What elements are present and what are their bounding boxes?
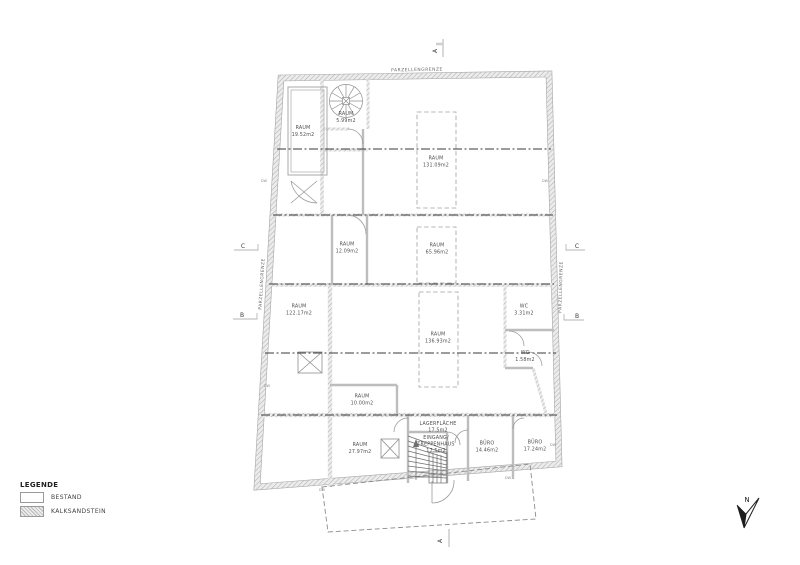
room-area: 17.5m2 xyxy=(428,428,448,434)
room-name: RAUM xyxy=(430,243,445,249)
room-label-raum-131-09: RAUM 131.09m2 xyxy=(423,156,449,169)
dw-label: DW xyxy=(264,384,271,388)
dw-label: DW xyxy=(319,488,326,492)
room-label-buero-17-24: BÜRO 17.24m2 xyxy=(524,439,547,453)
dw-label: DW xyxy=(542,179,549,183)
room-area: 65.96m2 xyxy=(426,250,449,256)
room-label-buero-14-46: BÜRO 14.46m2 xyxy=(476,440,499,454)
room-name-line1: EINGANG/ xyxy=(423,435,449,441)
room-area: 1.58m2 xyxy=(515,357,535,363)
dw-label: DW xyxy=(505,476,512,480)
section-marker-b-right: B xyxy=(564,313,584,320)
kalksandstein-swatch xyxy=(20,506,44,517)
room-label-raum-10-00: RAUM 10.00m2 xyxy=(351,394,374,407)
room-name: LAGERFLÄCHE xyxy=(420,420,457,427)
section-lines xyxy=(261,149,557,415)
dw-label: DW xyxy=(261,179,268,183)
room-name: WC xyxy=(520,304,529,310)
room-name: RAUM xyxy=(292,304,307,310)
section-letter-a: A xyxy=(432,48,439,53)
section-letter-b: B xyxy=(240,312,244,319)
bestand-swatch xyxy=(20,492,44,503)
section-letter-c: C xyxy=(241,243,245,250)
room-name: RAUM xyxy=(353,442,368,448)
room-area: 14.46m2 xyxy=(476,448,499,454)
legend: LEGENDE BESTAND KALKSANDSTEIN xyxy=(20,481,106,517)
boundary-labels: PARZELLENGRENZE PARZELLENGRENZE PARZELLE… xyxy=(257,67,564,313)
room-label-raum-136-93: RAUM 136.93m2 xyxy=(425,332,451,345)
room-area: 136.93m2 xyxy=(425,339,451,345)
room-label-wc-3-31: WC 3.31m2 xyxy=(514,304,534,317)
shaft-symbols xyxy=(298,352,399,458)
room-name: WC xyxy=(521,350,530,356)
room-area: 131.09m2 xyxy=(423,163,449,169)
room-area: 17.5m2 xyxy=(426,448,446,454)
room-name: RAUM xyxy=(296,125,311,131)
section-letter-a: A xyxy=(437,538,444,543)
room-area: 27.97m2 xyxy=(349,449,372,455)
room-name: RAUM xyxy=(355,394,370,400)
legend-item-label: BESTAND xyxy=(51,494,82,501)
room-area: 5.99m2 xyxy=(336,118,356,124)
legend-item-label: KALKSANDSTEIN xyxy=(51,508,106,515)
room-label-wc-1-58: WC 1.58m2 xyxy=(515,350,535,363)
north-label: N xyxy=(744,496,749,504)
room-area: 17.24m2 xyxy=(524,447,547,453)
room-label-eingang-treppenhaus: EINGANG/ TREPPENHAUS 17.5m2 xyxy=(416,435,454,454)
room-label-raum-27-97: RAUM 27.97m2 xyxy=(349,442,372,455)
room-name: RAUM xyxy=(429,156,444,162)
legend-item-bestand: BESTAND xyxy=(20,492,106,503)
room-area: 19.52m2 xyxy=(292,132,315,138)
legend-item-kalksandstein: KALKSANDSTEIN xyxy=(20,506,106,517)
room-label-raum-19-52: RAUM 19.52m2 xyxy=(292,125,315,138)
room-area: 12.09m2 xyxy=(336,249,359,255)
room-name: RAUM xyxy=(340,242,355,248)
room-label-raum-65-96: RAUM 65.96m2 xyxy=(426,243,449,256)
section-marker-c-left: C xyxy=(234,243,258,250)
room-labels: RAUM 19.52m2 RAUM 5.99m2 RAUM 131.09m2 R… xyxy=(286,111,546,455)
section-letter-c: C xyxy=(575,243,579,250)
room-area: 10.00m2 xyxy=(351,401,374,407)
skylight-outlines xyxy=(417,112,458,387)
section-letter-b: B xyxy=(575,313,579,320)
room-label-raum-122-17: RAUM 122.17m2 xyxy=(286,304,312,317)
section-marker-a-bottom: A xyxy=(437,529,449,547)
north-arrow-icon: N xyxy=(733,492,773,540)
floor-plan: A A C B C B PARZELLENGRENZE PARZELLENGRE… xyxy=(0,0,800,565)
room-label-raum-12-09: RAUM 12.09m2 xyxy=(336,242,359,255)
parcel-boundary-label-right: PARZELLENGRENZE xyxy=(557,261,564,313)
room-name: RAUM xyxy=(339,111,354,117)
legend-title: LEGENDE xyxy=(20,481,106,489)
dw-label: DW xyxy=(550,443,557,447)
room-name: BÜRO xyxy=(528,439,543,446)
room-name-line2: TREPPENHAUS xyxy=(416,442,454,448)
drawing-sheet: A A C B C B PARZELLENGRENZE PARZELLENGRE… xyxy=(0,0,800,565)
section-marker-a-top: A xyxy=(432,39,443,57)
room-name: BÜRO xyxy=(480,440,495,447)
room-area: 3.31m2 xyxy=(514,311,534,317)
parcel-boundary-label-top: PARZELLENGRENZE xyxy=(391,67,443,74)
section-marker-b-left: B xyxy=(233,312,257,319)
room-area: 122.17m2 xyxy=(286,311,312,317)
section-marker-c-right: C xyxy=(566,243,585,250)
room-name: RAUM xyxy=(431,332,446,338)
